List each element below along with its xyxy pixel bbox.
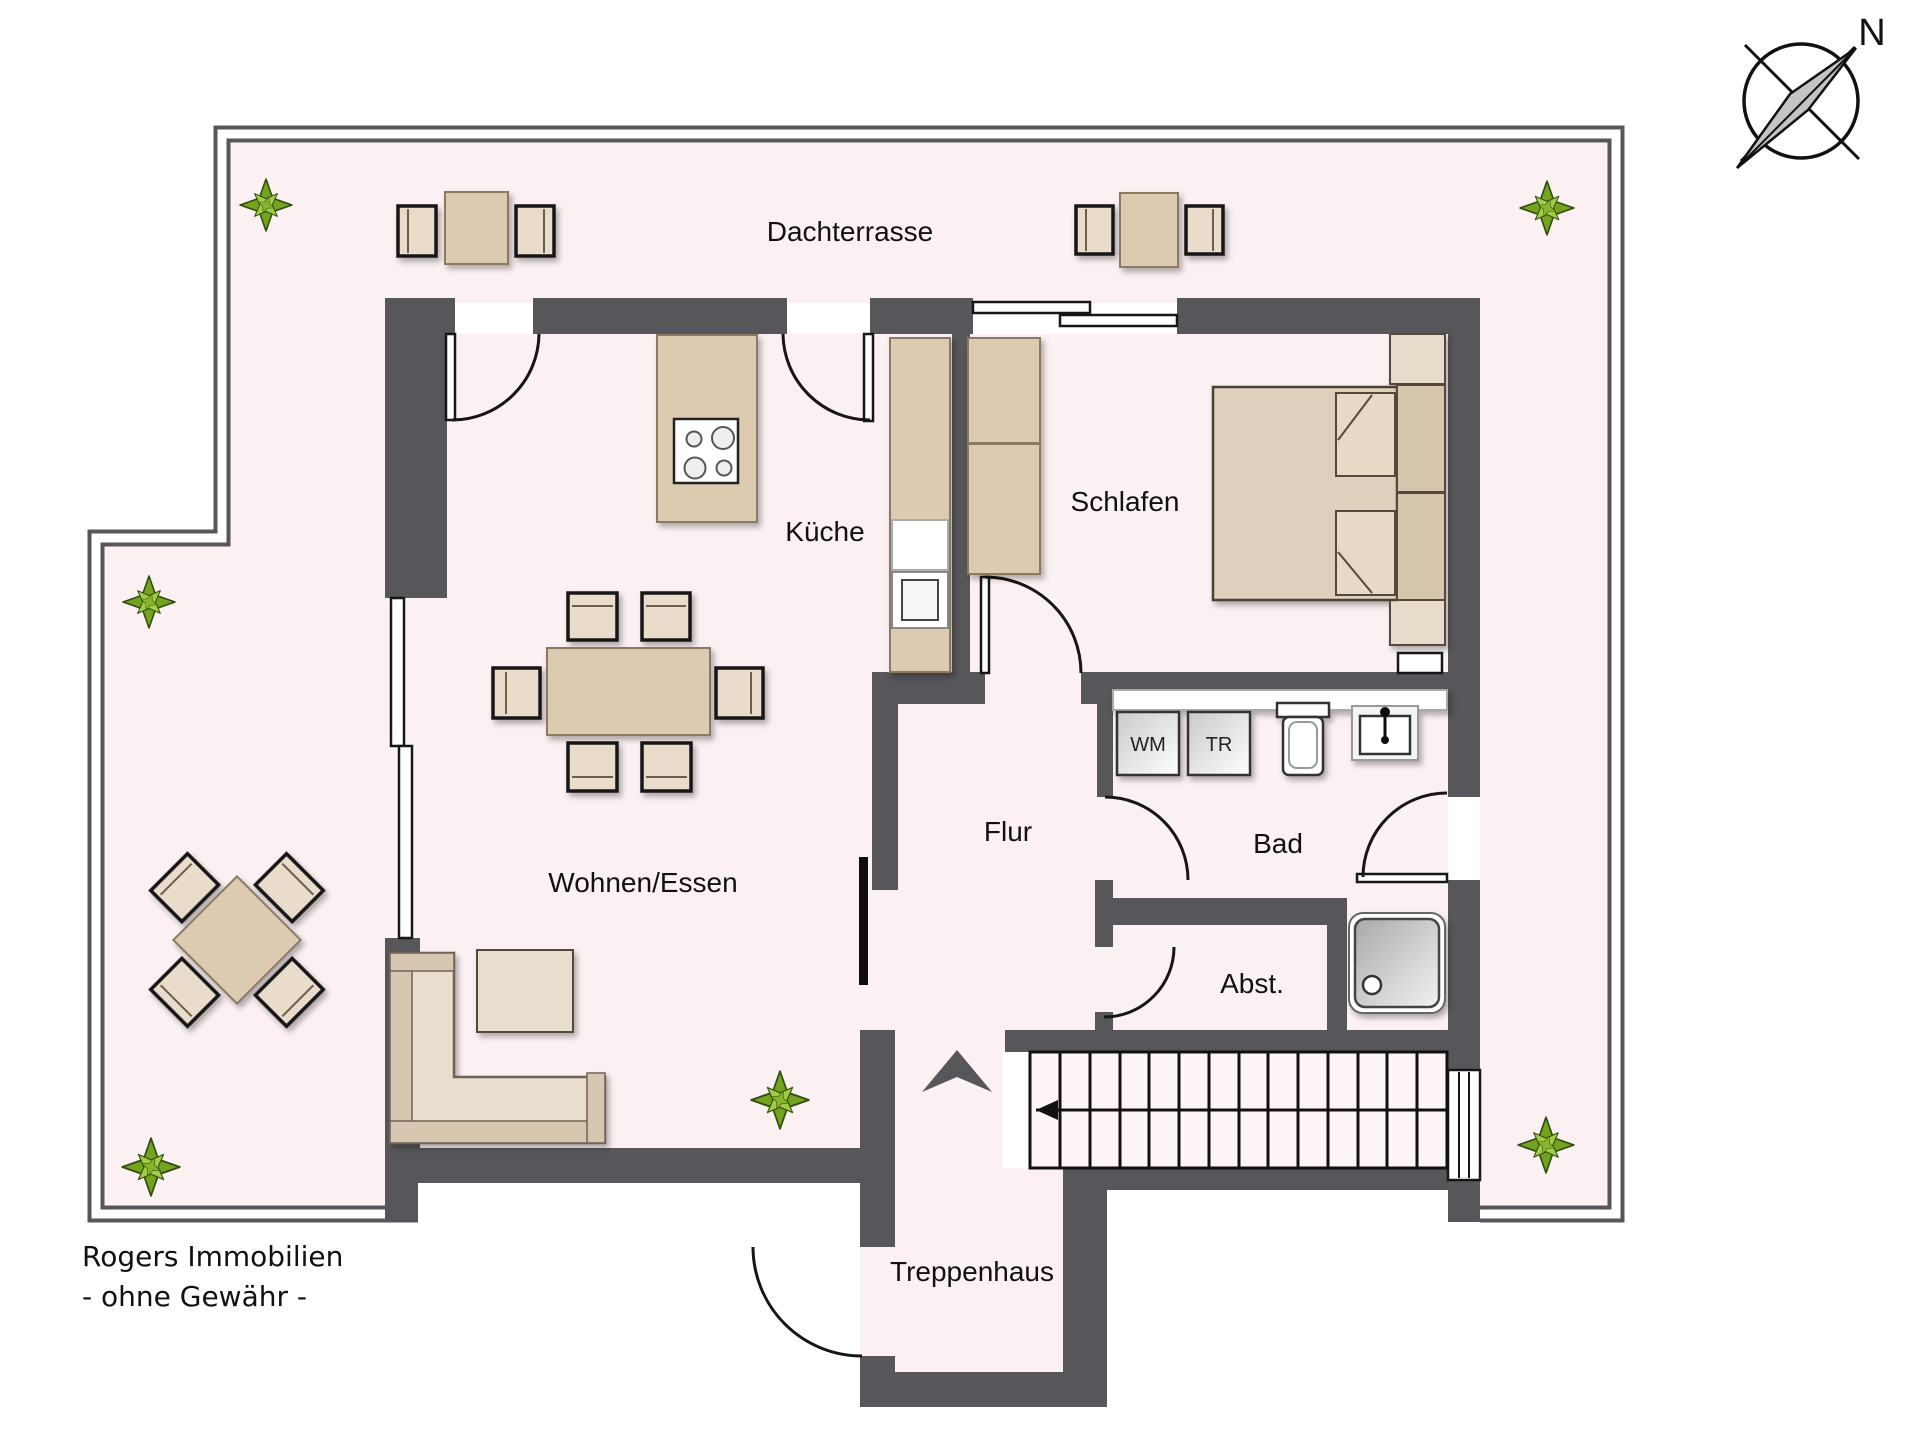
compass-rose: N (1737, 12, 1886, 168)
wardrobe (968, 338, 1040, 574)
washing-machine-label: WM (1130, 734, 1166, 756)
terrace-floor-east (1480, 300, 1608, 1205)
dryer-label: TR (1206, 734, 1233, 756)
headboard-top (1397, 385, 1445, 492)
bath-sink-icon (1352, 706, 1418, 760)
kitchen-sink-icon (892, 572, 948, 628)
room-label-dachterrasse: Dachterrasse (767, 216, 934, 247)
terrace-door-leaf-living (446, 334, 455, 420)
room-label-kueche: Küche (785, 516, 864, 547)
shower-icon (1349, 913, 1445, 1013)
compass-north-label: N (1858, 12, 1885, 54)
terrace-floor-left-lower (104, 546, 385, 1205)
toilet-icon (1277, 703, 1329, 775)
bedroom-wall-niche (1398, 653, 1442, 673)
stairs-window (1448, 1070, 1480, 1180)
room-label-schlafen: Schlafen (1071, 486, 1180, 517)
living-window-upper (391, 598, 404, 746)
nightstand-bottom (1390, 600, 1445, 645)
living-window-lower (399, 746, 412, 938)
terrace-floor-left-upper (230, 300, 385, 546)
bedroom-sliding-window-2 (1060, 315, 1177, 326)
headboard-bottom (1397, 493, 1445, 600)
footer-line1: Rogers Immobilien (82, 1240, 343, 1273)
pillow-bottom (1336, 511, 1395, 595)
room-label-wohnen-essen: Wohnen/Essen (548, 867, 737, 898)
stove-icon (674, 419, 738, 483)
coffee-table (477, 950, 573, 1032)
room-label-flur: Flur (984, 816, 1032, 847)
floor-plan-canvas: N Dachterrasse Küche Schlafen Wohnen/Ess… (0, 0, 1920, 1440)
shower-drain (1363, 976, 1381, 994)
bedroom-sliding-window (973, 302, 1090, 313)
kitchen-island (657, 335, 757, 522)
nightstand-top (1390, 334, 1445, 384)
dining-table (547, 648, 710, 735)
entrance-door-arc (753, 1247, 862, 1356)
room-label-abstellraum: Abst. (1220, 968, 1284, 999)
footer: Rogers Immobilien - ohne Gewähr - (82, 1240, 343, 1313)
terrace-door-leaf-kitchen (864, 334, 873, 421)
room-label-treppenhaus: Treppenhaus (890, 1256, 1054, 1287)
bedroom-door-leaf (981, 577, 989, 673)
floor-plan-page: N Dachterrasse Küche Schlafen Wohnen/Ess… (0, 0, 1920, 1440)
kitchen-counter (890, 338, 950, 672)
bath-terrace-door-leaf (1357, 874, 1447, 882)
footer-line2: - ohne Gewähr - (82, 1280, 307, 1313)
living-sliding-door (859, 857, 868, 985)
room-label-bad: Bad (1253, 828, 1303, 859)
pillow-top (1336, 393, 1395, 476)
